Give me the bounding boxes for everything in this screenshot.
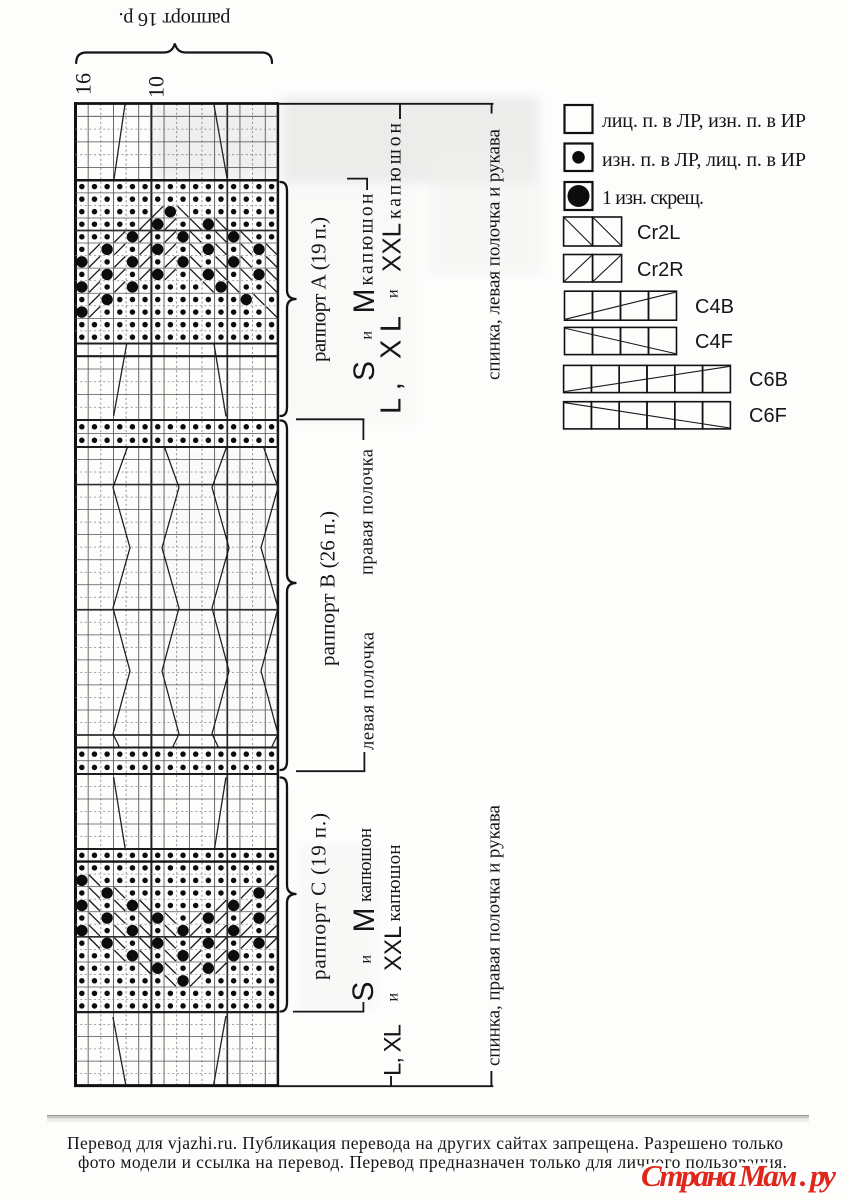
svg-text:Перевод для vjazhi.ru. Публика: Перевод для vjazhi.ru. Публикация перево… [67, 1133, 783, 1153]
svg-text:Cr2R: Cr2R [637, 259, 684, 281]
svg-text:капюшон: капюшон [385, 123, 406, 219]
svg-text:S: S [347, 981, 380, 1001]
svg-text:капюшон: капюшон [357, 194, 378, 286]
svg-text:правая полочка: правая полочка [358, 449, 378, 575]
svg-text:раппорт С (19 п.): раппорт С (19 п.) [307, 813, 331, 980]
svg-text:изн. п. в ЛР, лиц. п. в ИР: изн. п. в ЛР, лиц. п. в ИР [602, 149, 806, 171]
svg-text:16: 16 [71, 73, 96, 95]
svg-text:C6B: C6B [749, 369, 788, 391]
svg-text:и: и [359, 331, 376, 340]
svg-text:капюшон: капюшон [384, 845, 405, 922]
svg-text:XXL: XXL [380, 926, 407, 971]
svg-text:Cr2L: Cr2L [637, 222, 680, 244]
svg-text:M: M [348, 908, 381, 933]
svg-text:раппорт В (26 п.): раппорт В (26 п.) [316, 511, 340, 666]
svg-text:спинка, левая полочка и рукава: спинка, левая полочка и рукава [484, 128, 505, 380]
svg-text:XXL: XXL [377, 223, 407, 272]
svg-text:M: M [348, 289, 381, 314]
svg-text:спинка, правая полочка и рукав: спинка, правая полочка и рукава [484, 804, 505, 1066]
svg-text:левая полочка: левая полочка [359, 632, 379, 750]
svg-text:10: 10 [144, 76, 169, 98]
svg-text:и: и [358, 955, 375, 964]
svg-text:C4B: C4B [695, 296, 734, 318]
svg-text:Страна Мам . ру: Страна Мам . ру [641, 1158, 836, 1193]
svg-text:капюшон: капюшон [355, 828, 376, 902]
svg-text:и: и [385, 993, 402, 1002]
svg-text:и: и [385, 289, 402, 298]
svg-text:C6F: C6F [749, 405, 787, 427]
svg-text:раппорт 16 р.: раппорт 16 р. [119, 8, 231, 30]
svg-text:1 изн. скрещ.: 1 изн. скрещ. [602, 187, 704, 209]
svg-text:раппорт А (19 п.): раппорт А (19 п.) [307, 217, 331, 362]
svg-text:лиц. п. в ЛР, изн. п. в ИР: лиц. п. в ЛР, изн. п. в ИР [602, 110, 806, 132]
svg-text:L, XL: L, XL [380, 1024, 407, 1076]
svg-text:C4F: C4F [695, 331, 733, 353]
